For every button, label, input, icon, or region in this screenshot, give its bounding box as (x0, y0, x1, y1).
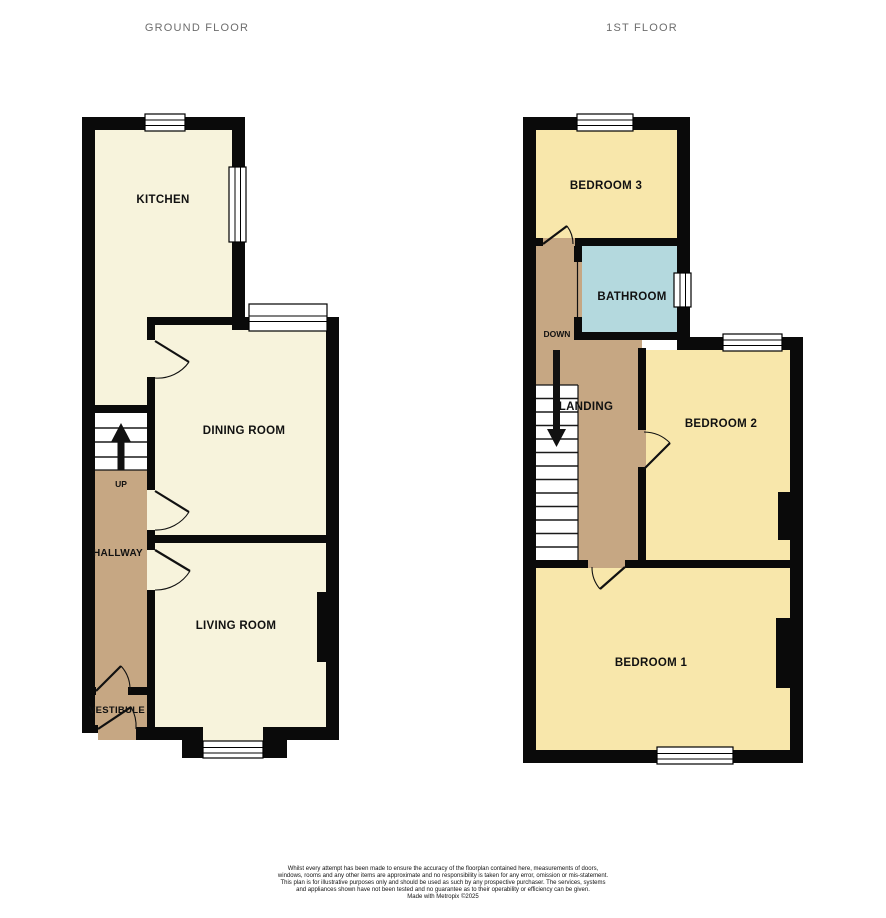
bedroom3-window (577, 114, 633, 131)
living-bay-window (203, 741, 263, 758)
first-floor-title: 1ST FLOOR (606, 22, 678, 34)
vestibule-label: VESTIBULE (89, 705, 145, 716)
bedroom2-window (723, 334, 782, 351)
bedroom2-label: BEDROOM 2 (685, 418, 757, 430)
ff-bedroom2-floor (646, 350, 790, 560)
kitchen-side-window (229, 167, 246, 242)
bedroom1-label: BEDROOM 1 (615, 657, 688, 669)
gf-hallway-floor (95, 470, 147, 740)
kitchen-label: KITCHEN (136, 194, 189, 206)
kitchen-top-window (145, 114, 185, 131)
dining-window (249, 304, 327, 331)
floorplan-canvas: GROUND FLOOR (0, 0, 886, 918)
hallway-label: HALLWAY (93, 548, 143, 559)
bedroom1-window (657, 747, 733, 764)
down-label: DOWN (544, 329, 571, 339)
disclaimer-text: Whilst every attempt has been made to en… (277, 866, 609, 894)
up-label: UP (115, 479, 127, 489)
bathroom-window (674, 273, 691, 307)
ff-bathroom-floor (574, 246, 677, 332)
dining-label: DINING ROOM (203, 425, 286, 437)
ground-floor-title: GROUND FLOOR (145, 22, 249, 34)
credit-text: Made with Metropix ©2025 (277, 894, 609, 901)
living-label: LIVING ROOM (196, 620, 277, 632)
bedroom3-label: BEDROOM 3 (570, 180, 642, 192)
gf-chimney-breast (317, 592, 327, 662)
footer: Whilst every attempt has been made to en… (0, 866, 886, 901)
bathroom-label: BATHROOM (597, 291, 666, 303)
ff-chimney-breast-bed1 (776, 618, 790, 688)
landing-label: LANDING (559, 401, 614, 413)
ff-chimney-breast-bed2 (778, 492, 790, 540)
floorplan-page: GROUND FLOOR (0, 0, 886, 918)
